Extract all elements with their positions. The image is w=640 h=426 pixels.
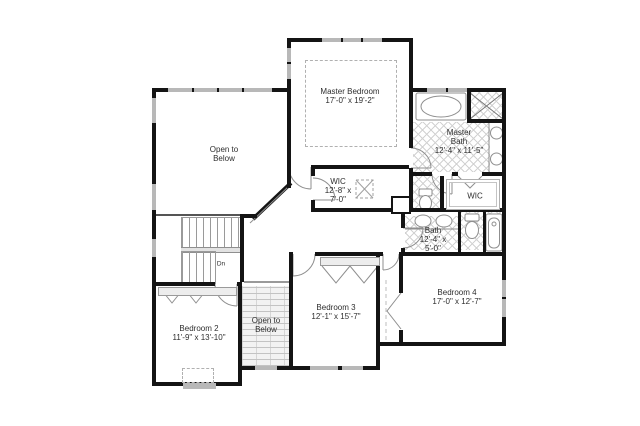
- room-label-bedroom-2: Bedroom 2 11'-9" x 13'-10": [172, 324, 225, 342]
- wall: [311, 165, 409, 169]
- wall: [458, 212, 461, 253]
- window-mullion: [242, 88, 244, 92]
- window: [342, 366, 363, 370]
- wall: [152, 88, 156, 386]
- wall: [399, 252, 506, 256]
- attic-access-icon: [356, 180, 373, 198]
- window: [183, 383, 216, 389]
- wall: [152, 282, 215, 286]
- window-mullion: [341, 38, 343, 42]
- window: [152, 239, 156, 257]
- window-mullion: [217, 88, 219, 92]
- window-seat-outline: [182, 368, 214, 383]
- stair-down-label: Dn: [217, 260, 225, 267]
- hall-toilet-icon: [465, 214, 479, 239]
- master-vanity-sinks-icon: [489, 122, 503, 172]
- wall: [311, 165, 315, 176]
- window-mullion: [192, 88, 194, 92]
- room-label-open-to-below-lower: Open to Below: [252, 316, 280, 334]
- window: [310, 366, 338, 370]
- wall: [311, 200, 315, 212]
- wall: [376, 252, 380, 370]
- wall: [401, 212, 405, 228]
- wall: [467, 92, 471, 123]
- shower-icon: [470, 93, 503, 119]
- wall: [409, 92, 413, 148]
- wall: [399, 342, 506, 346]
- bedroom3-closet-shelf: [320, 257, 380, 266]
- master-tub-icon: [416, 93, 466, 120]
- wall: [452, 172, 458, 176]
- wall: [409, 38, 413, 92]
- wall: [399, 252, 403, 293]
- room-label-wic-left: WIC 12'-8" x 7'-0": [325, 177, 352, 205]
- wall: [240, 215, 244, 282]
- window-mullion: [446, 88, 448, 92]
- wall: [238, 282, 242, 386]
- window-mullion: [361, 38, 363, 42]
- wall: [289, 252, 293, 370]
- floor-plan-canvas: Master Bedroom 17'-0" x 19'-2" Master Ba…: [0, 0, 640, 426]
- wall: [440, 176, 444, 212]
- window: [152, 98, 156, 123]
- linen-closet: [391, 196, 411, 214]
- room-label-bedroom-4: Bedroom 4 17'-0" x 12'-7": [432, 288, 481, 306]
- window: [152, 184, 156, 210]
- wall: [413, 172, 432, 176]
- bedroom2-closet-shelf: [158, 287, 237, 296]
- wall: [399, 330, 403, 346]
- room-label-bedroom-3: Bedroom 3 12'-1" x 15'-7": [311, 303, 360, 321]
- room-label-master-bath: Master Bath 12'-4" x 11'-5": [435, 128, 484, 156]
- room-label-open-to-below-upper: Open to Below: [210, 145, 238, 163]
- window: [322, 38, 382, 42]
- wall: [315, 252, 383, 256]
- wall: [483, 212, 486, 253]
- room-label-wic-right: WIC: [467, 191, 483, 200]
- wall: [401, 248, 405, 256]
- hall-tub-icon: [486, 214, 502, 251]
- room-label-hall-bath: Bath 12'-4" x 5'-0": [420, 226, 447, 254]
- window: [255, 366, 277, 370]
- wall: [467, 119, 506, 123]
- window-mullion: [502, 297, 506, 299]
- window-mullion: [287, 62, 291, 64]
- room-label-master-bedroom: Master Bedroom 17'-0" x 19'-2": [320, 87, 379, 105]
- window: [168, 88, 272, 92]
